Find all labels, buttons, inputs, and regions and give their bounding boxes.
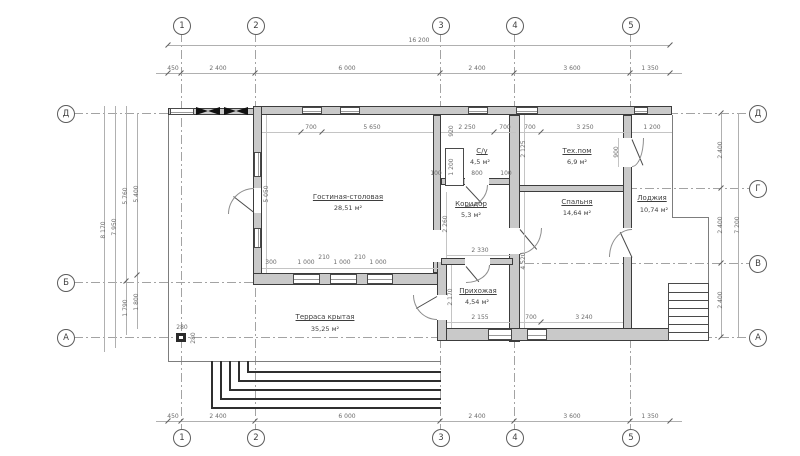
window: [516, 107, 538, 114]
dim-label: 7 200: [735, 216, 741, 233]
dim-label: 920: [449, 125, 455, 136]
door-opening: [465, 258, 490, 265]
axis-label: Г: [755, 184, 760, 194]
dim-label: 1 200: [643, 125, 660, 131]
window: [527, 329, 547, 340]
dimension-line: [168, 45, 670, 46]
stair-tread: [669, 292, 708, 293]
axis-circle-5-top: 5: [622, 17, 640, 35]
dim-label: 4 520: [521, 252, 527, 269]
room-area-tech: 6,9 м²: [567, 158, 587, 166]
dim-label: 2 260: [443, 215, 449, 232]
axis-circle-D-right: Д: [749, 105, 767, 123]
dim-label: 1 000: [333, 260, 350, 266]
dim-label: 7 950: [112, 218, 118, 235]
dim-label: 2 400: [468, 414, 485, 420]
terrace-step: [229, 361, 231, 389]
axis-circle-A-left: А: [57, 329, 75, 347]
dim-label: 700: [305, 125, 316, 131]
dim-label: 700: [499, 125, 510, 131]
window: [254, 152, 261, 177]
room-label-tech: Тех.пом: [562, 147, 591, 155]
dim-label: 2 155: [471, 315, 488, 321]
axis-label: Д: [755, 109, 762, 119]
dim-label: 1 350: [641, 66, 658, 72]
room-area-living: 28,51 м²: [334, 204, 362, 212]
column-post: [176, 333, 186, 342]
axis-label: 4: [512, 433, 517, 443]
dim-label: 3 600: [563, 66, 580, 72]
axis-label: А: [63, 333, 69, 343]
dim-label: 280: [191, 332, 197, 343]
dim-label: 450: [167, 414, 178, 420]
axis-circle-D-left: Д: [57, 105, 75, 123]
grid-line-G: [628, 188, 749, 189]
door-arc: [228, 188, 254, 214]
door-opening: [254, 188, 261, 213]
dim-label: 1 790: [123, 299, 129, 316]
dim-label: 2 400: [718, 141, 724, 158]
room-label-living: Гостиная-столовая: [313, 193, 383, 201]
axis-circle-V-right: В: [749, 255, 767, 273]
axis-circle-G-right: Г: [749, 180, 767, 198]
beam-bowtie-icon: [196, 107, 208, 115]
door-arc: [466, 265, 490, 283]
dimension-line: [632, 132, 672, 133]
dim-label: 1 200: [449, 158, 455, 175]
dim-label: 2 170: [448, 288, 454, 305]
room-area-loggia: 10,74 м²: [640, 206, 668, 214]
axis-label: 1: [179, 433, 184, 443]
room-area-hall: 4,54 м²: [465, 298, 489, 306]
window: [254, 228, 261, 248]
dim-label: 2 250: [458, 125, 475, 131]
door-arc: [609, 229, 632, 257]
terrace-step: [220, 398, 441, 400]
dimension-line: [520, 322, 623, 323]
axis-circle-A-right: А: [749, 329, 767, 347]
dim-label: 2 400: [468, 66, 485, 72]
dim-label: 2 400: [209, 66, 226, 72]
dim-label: 210: [354, 255, 365, 261]
dimension-line: [262, 132, 433, 133]
dim-label: 1 000: [369, 260, 386, 266]
stair-tread: [669, 300, 708, 301]
dim-label: 3 250: [576, 125, 593, 131]
axis-label: 1: [179, 21, 184, 31]
dim-label: 900: [614, 146, 620, 157]
dim-label: 5 760: [123, 187, 129, 204]
axis-label: Д: [63, 109, 70, 119]
axis-circle-1-top: 1: [173, 17, 191, 35]
tech-south-wall: [519, 185, 632, 192]
dim-label: 2 125: [521, 140, 527, 157]
terrace-step: [229, 389, 441, 391]
dim-label: 6 000: [338, 414, 355, 420]
axis-label: 3: [438, 433, 443, 443]
door-arc: [413, 295, 437, 320]
wall-opening: [433, 230, 441, 262]
axis-label: 2: [253, 21, 258, 31]
terrace-step: [247, 371, 441, 373]
window: [367, 274, 393, 284]
room-area-bedroom: 14,64 м²: [563, 209, 591, 217]
room-label-terrace: Терраса крытая: [296, 313, 355, 321]
door-opening: [623, 138, 632, 167]
axis-circle-2-top: 2: [247, 17, 265, 35]
dim-label: 210: [318, 255, 329, 261]
dimension-line: [156, 73, 682, 74]
room-area-corridor: 5,3 м²: [461, 211, 481, 219]
stair-tread: [669, 308, 708, 309]
terrace-step: [211, 361, 213, 407]
window: [340, 107, 360, 114]
room-label-loggia: Лоджия: [637, 194, 666, 202]
room-label-hall: Прихожая: [459, 287, 497, 295]
room-label-wc: С/у: [476, 147, 487, 155]
grid-line-1: [181, 33, 182, 429]
axis-circle-5-bottom: 5: [622, 429, 640, 447]
dim-label: 8 170: [101, 221, 107, 238]
dim-label: 1 350: [641, 414, 658, 420]
dim-label: 450: [167, 66, 178, 72]
axis-label: В: [755, 259, 761, 269]
window: [330, 274, 357, 284]
dim-label: 100: [430, 171, 441, 177]
axis-label: А: [755, 333, 761, 343]
room-area-terrace: 35,25 м²: [311, 325, 339, 333]
dim-label: 5 400: [134, 185, 140, 202]
grid-line-B: [74, 282, 258, 283]
dim-label: 2 400: [718, 291, 724, 308]
dim-label: 5 650: [363, 125, 380, 131]
room-label-bedroom: Спальня: [561, 198, 592, 206]
dim-label: 300: [265, 260, 276, 266]
loggia-edge: [672, 217, 708, 218]
axis-circle-4-bottom: 4: [506, 429, 524, 447]
axis-label: 5: [628, 21, 633, 31]
floor-plan: 1 2 3 4 5 1 2 3 4 5 Д Б А Д Г В А 16 200…: [0, 0, 800, 456]
dim-label: 2 330: [471, 248, 488, 254]
stair-tread: [669, 332, 708, 333]
terrace-step: [238, 361, 240, 380]
window: [468, 107, 488, 114]
axis-circle-B-left: Б: [57, 274, 75, 292]
terrace-step: [220, 361, 222, 398]
dimension-line: [156, 421, 682, 422]
dim-label: 1 800: [134, 293, 140, 310]
axis-label: 4: [512, 21, 517, 31]
stairs: [668, 283, 709, 341]
stair-tread: [669, 324, 708, 325]
window: [302, 107, 322, 114]
door-opening: [509, 228, 520, 254]
loggia-edge: [708, 217, 709, 283]
dim-label: 2 400: [209, 414, 226, 420]
terrace-edge: [168, 361, 441, 362]
dim-tick: [667, 42, 673, 48]
axis-label: Б: [63, 278, 69, 288]
dimension-line: [447, 255, 513, 256]
terrace-step: [211, 407, 441, 409]
room-label-corridor: Коридор: [455, 200, 487, 208]
door-opening: [465, 178, 489, 185]
dim-label: 280: [176, 325, 187, 331]
dimension-line: [262, 268, 441, 269]
dim-label: 700: [525, 315, 536, 321]
terrace-step: [238, 380, 441, 382]
beam-bowtie-icon: [208, 107, 220, 115]
dimension-line: [520, 132, 630, 133]
stair-tread: [669, 316, 708, 317]
window: [488, 329, 512, 340]
terrace-edge: [168, 115, 169, 361]
room-area-wc: 4,5 м²: [470, 158, 490, 166]
axis-circle-1-bottom: 1: [173, 429, 191, 447]
south-wall: [437, 328, 673, 341]
dim-label: 100: [500, 171, 511, 177]
dim-label: 1 000: [297, 260, 314, 266]
dim-label: 800: [471, 171, 482, 177]
axis-circle-3-bottom: 3: [432, 429, 450, 447]
dim-label: 6 000: [338, 66, 355, 72]
beam-bowtie-icon: [224, 107, 236, 115]
axis-label: 3: [438, 21, 443, 31]
dim-label: 5 050: [264, 185, 270, 202]
loggia-edge: [672, 115, 673, 217]
axis-label: 2: [253, 433, 258, 443]
dimension-line: [447, 322, 513, 323]
dim-label: 2 400: [718, 216, 724, 233]
terrace-step: [247, 361, 249, 371]
beam-segment: [170, 108, 194, 115]
dim-label: 3 600: [563, 414, 580, 420]
dim-label: 16 200: [409, 38, 430, 44]
axis-circle-4-top: 4: [506, 17, 524, 35]
window: [634, 107, 648, 114]
axis-circle-3-top: 3: [432, 17, 450, 35]
entry-door-opening: [437, 295, 447, 320]
dim-label: 700: [524, 125, 535, 131]
dim-label: 3 240: [575, 315, 592, 321]
axis-circle-2-bottom: 2: [247, 429, 265, 447]
beam-bowtie-icon: [236, 107, 248, 115]
axis-label: 5: [628, 433, 633, 443]
window: [293, 274, 320, 284]
